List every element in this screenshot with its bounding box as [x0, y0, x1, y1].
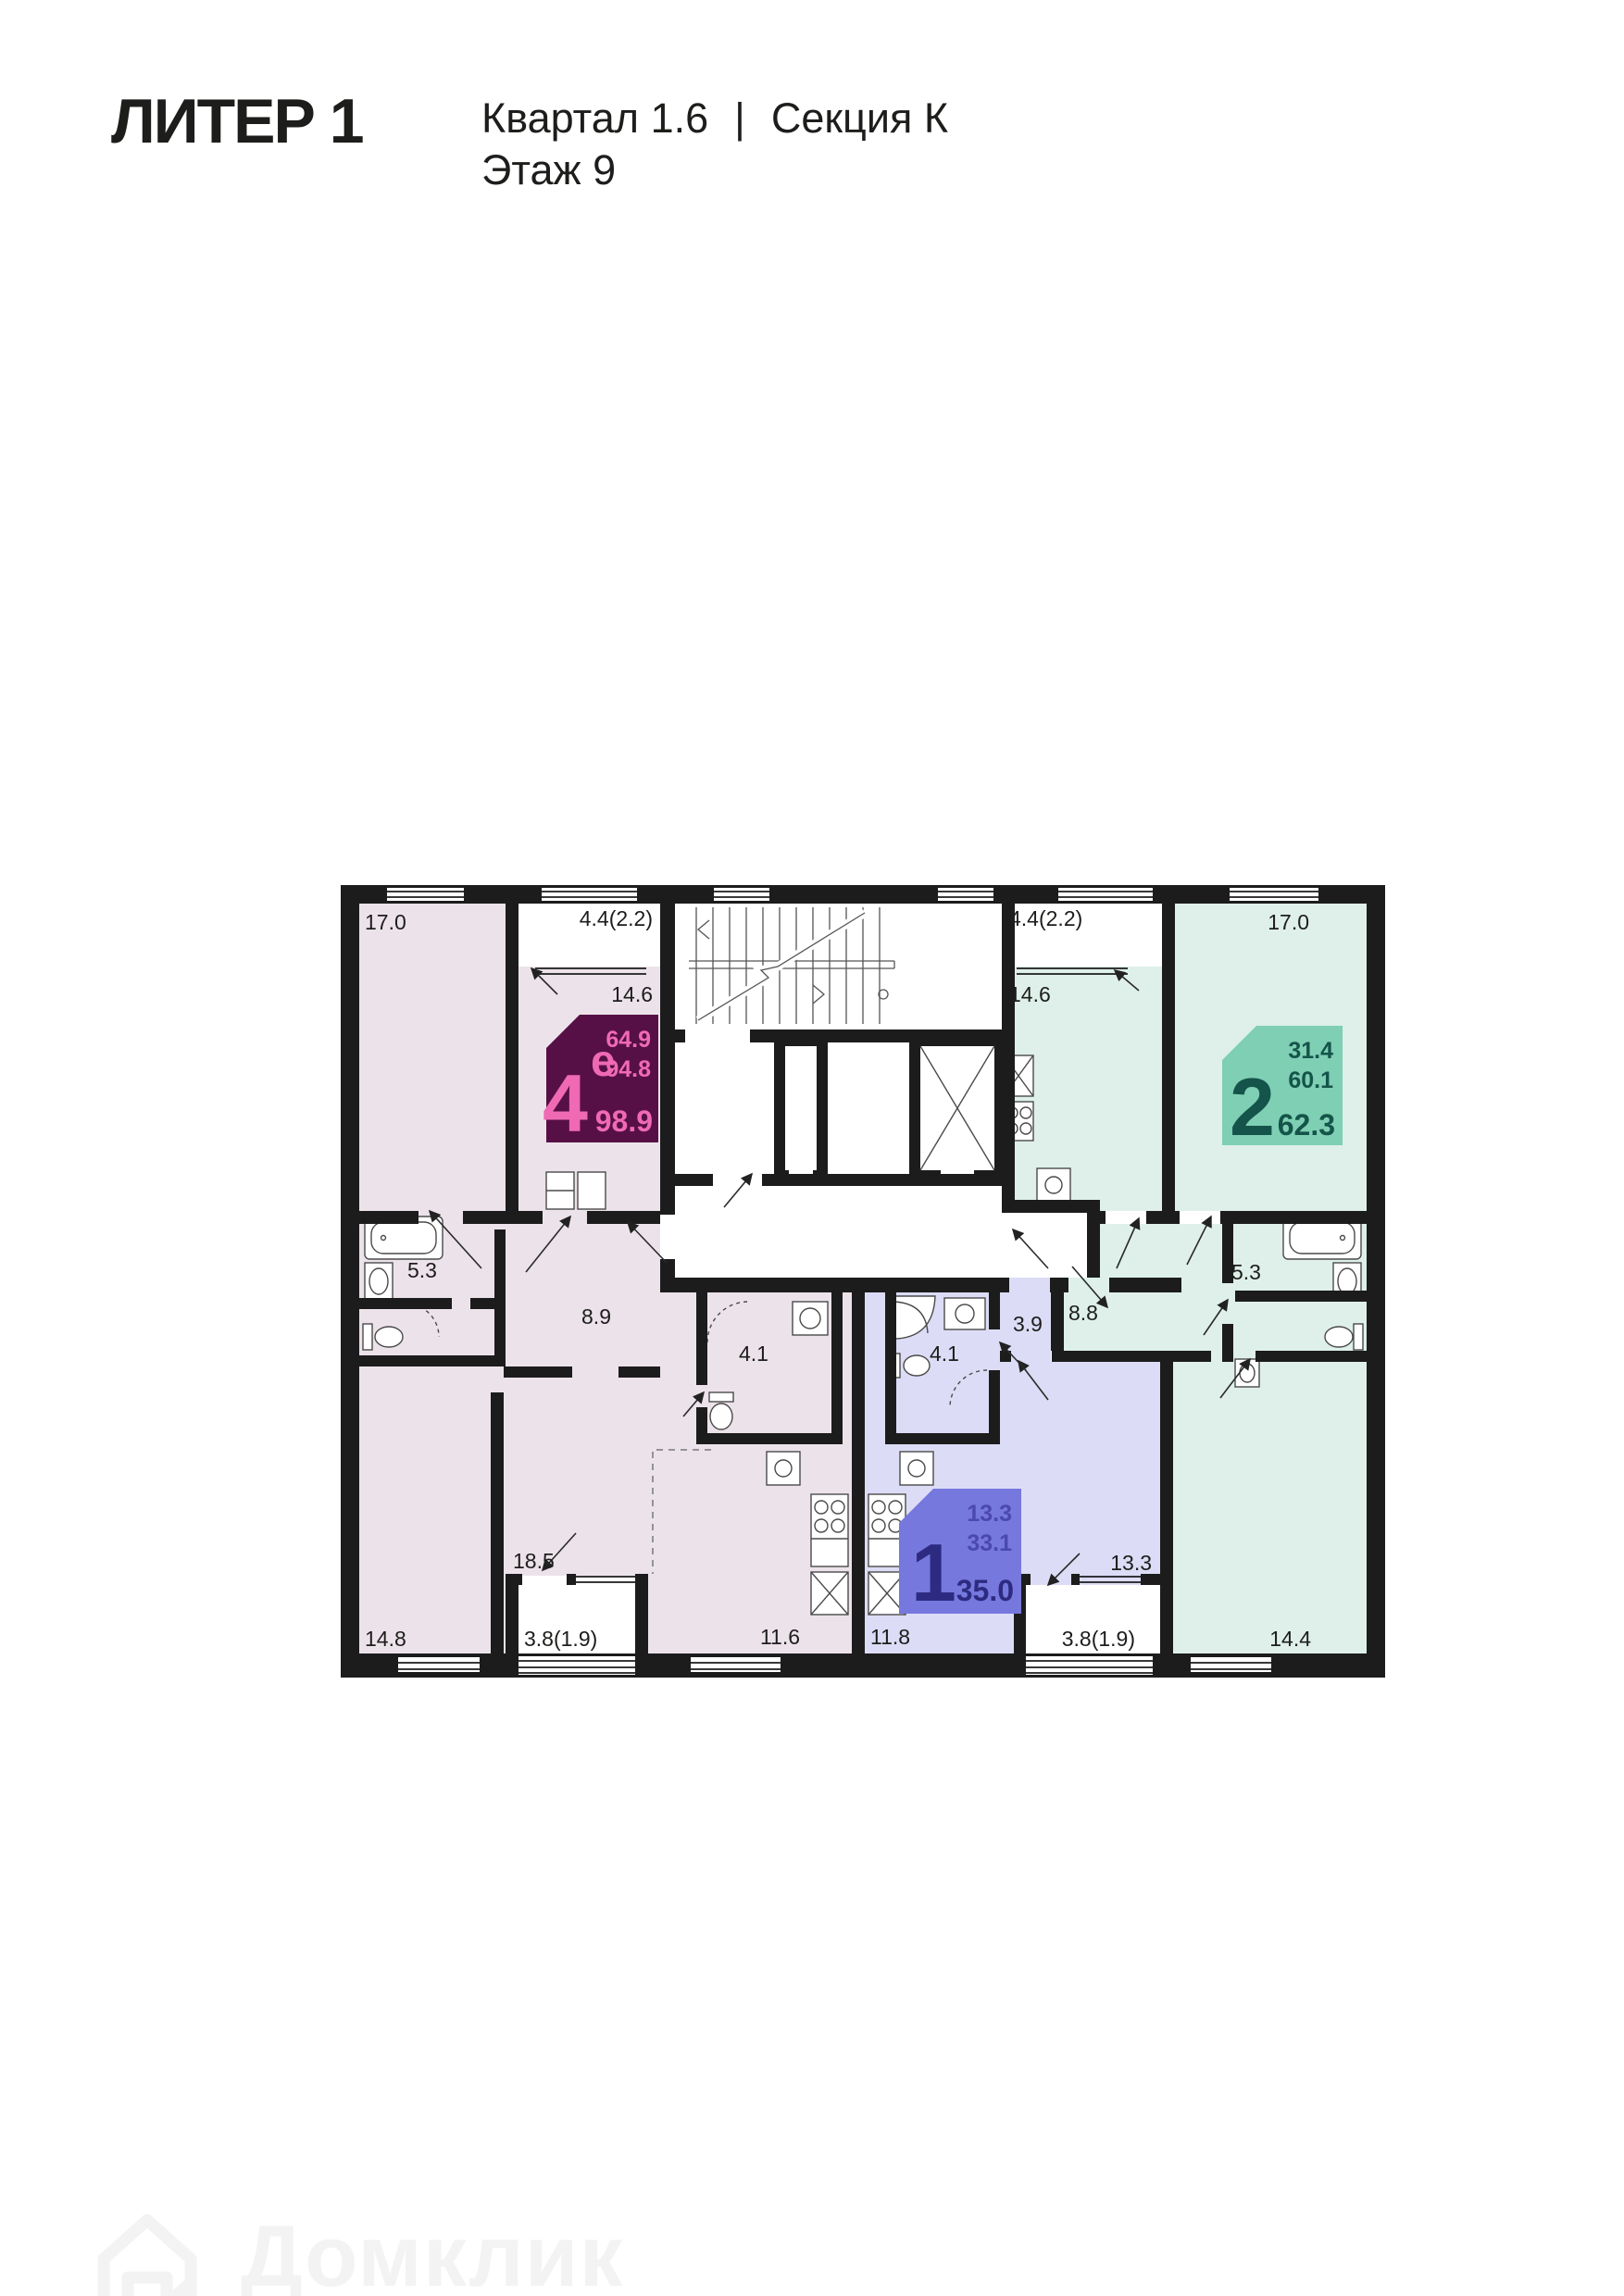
floor-label: Этаж 9 [481, 144, 948, 196]
room-area-label: 3.8(1.9) [524, 1627, 597, 1651]
block-label: Квартал 1.6 [481, 93, 708, 144]
watermark-brand: Домклик [241, 2206, 624, 2296]
watermark: Домклик [78, 2187, 624, 2296]
room-area-label: 17.0 [365, 910, 406, 934]
room-area-label: 14.6 [1009, 982, 1051, 1006]
room-area-label: 14.8 [365, 1627, 406, 1651]
badge-2-living-area: 31.4 [1288, 1038, 1333, 1064]
meta-divider: | [734, 93, 745, 144]
badge-1-total-area: 35.0 [956, 1574, 1014, 1607]
room-area-label: 14.6 [611, 982, 653, 1006]
room-area-label: 5.3 [407, 1258, 437, 1282]
badge-1-rooms: 1 [911, 1527, 956, 1618]
apartment-badge-2[interactable]: 31.4 60.1 2 62.3 [1222, 1026, 1343, 1153]
room-area-label: 4.1 [930, 1341, 959, 1366]
badge-2-area-no-balcony: 60.1 [1288, 1067, 1333, 1093]
badge-2-total-area: 62.3 [1278, 1108, 1335, 1142]
room-area-label: 4.4(2.2) [1009, 906, 1082, 930]
badge-4e-rooms: 4 [543, 1057, 588, 1149]
room-area-label: 8.9 [581, 1304, 611, 1329]
badge-1-area-no-balcony: 33.1 [967, 1530, 1012, 1556]
room-area-label: 11.6 [760, 1625, 800, 1649]
room-area-label: 3.9 [1013, 1312, 1043, 1336]
apartment-badge-4e[interactable]: 64.9 94.8 4 е 98.9 [543, 1015, 658, 1149]
room-area-label: 4.1 [739, 1341, 768, 1366]
badge-4e-euro-suffix: е [591, 1037, 616, 1086]
room-area-label: 8.8 [1068, 1301, 1098, 1325]
badge-2-rooms: 2 [1230, 1061, 1275, 1153]
room-area-label: 13.3 [1110, 1551, 1152, 1575]
plan-meta: Квартал 1.6 | Секция К Этаж 9 [481, 93, 948, 196]
room-area-label: 17.0 [1268, 910, 1309, 934]
room-area-label: 18.5 [513, 1549, 555, 1573]
badge-1-living-area: 13.3 [967, 1501, 1012, 1527]
floor-plan-page: ЛИТЕР 1 Квартал 1.6 | Секция К Этаж 9 [0, 0, 1624, 2296]
section-label: Секция К [771, 93, 948, 144]
house-icon [78, 2187, 217, 2296]
room-area-label: 14.4 [1269, 1627, 1311, 1651]
building-title: ЛИТЕР 1 [111, 85, 363, 157]
room-area-label: 11.8 [870, 1625, 910, 1649]
room-area-label: 4.4(2.2) [580, 906, 653, 930]
apartment-badge-1[interactable]: 13.3 33.1 1 35.0 [899, 1489, 1021, 1618]
floor-plan: 64.9 94.8 4 е 98.9 31.4 60.1 2 62.3 13.3… [341, 885, 1385, 1679]
badge-4e-total-area: 98.9 [595, 1104, 653, 1138]
room-area-label: 5.3 [1231, 1260, 1261, 1284]
room-area-label: 3.8(1.9) [1062, 1627, 1135, 1651]
